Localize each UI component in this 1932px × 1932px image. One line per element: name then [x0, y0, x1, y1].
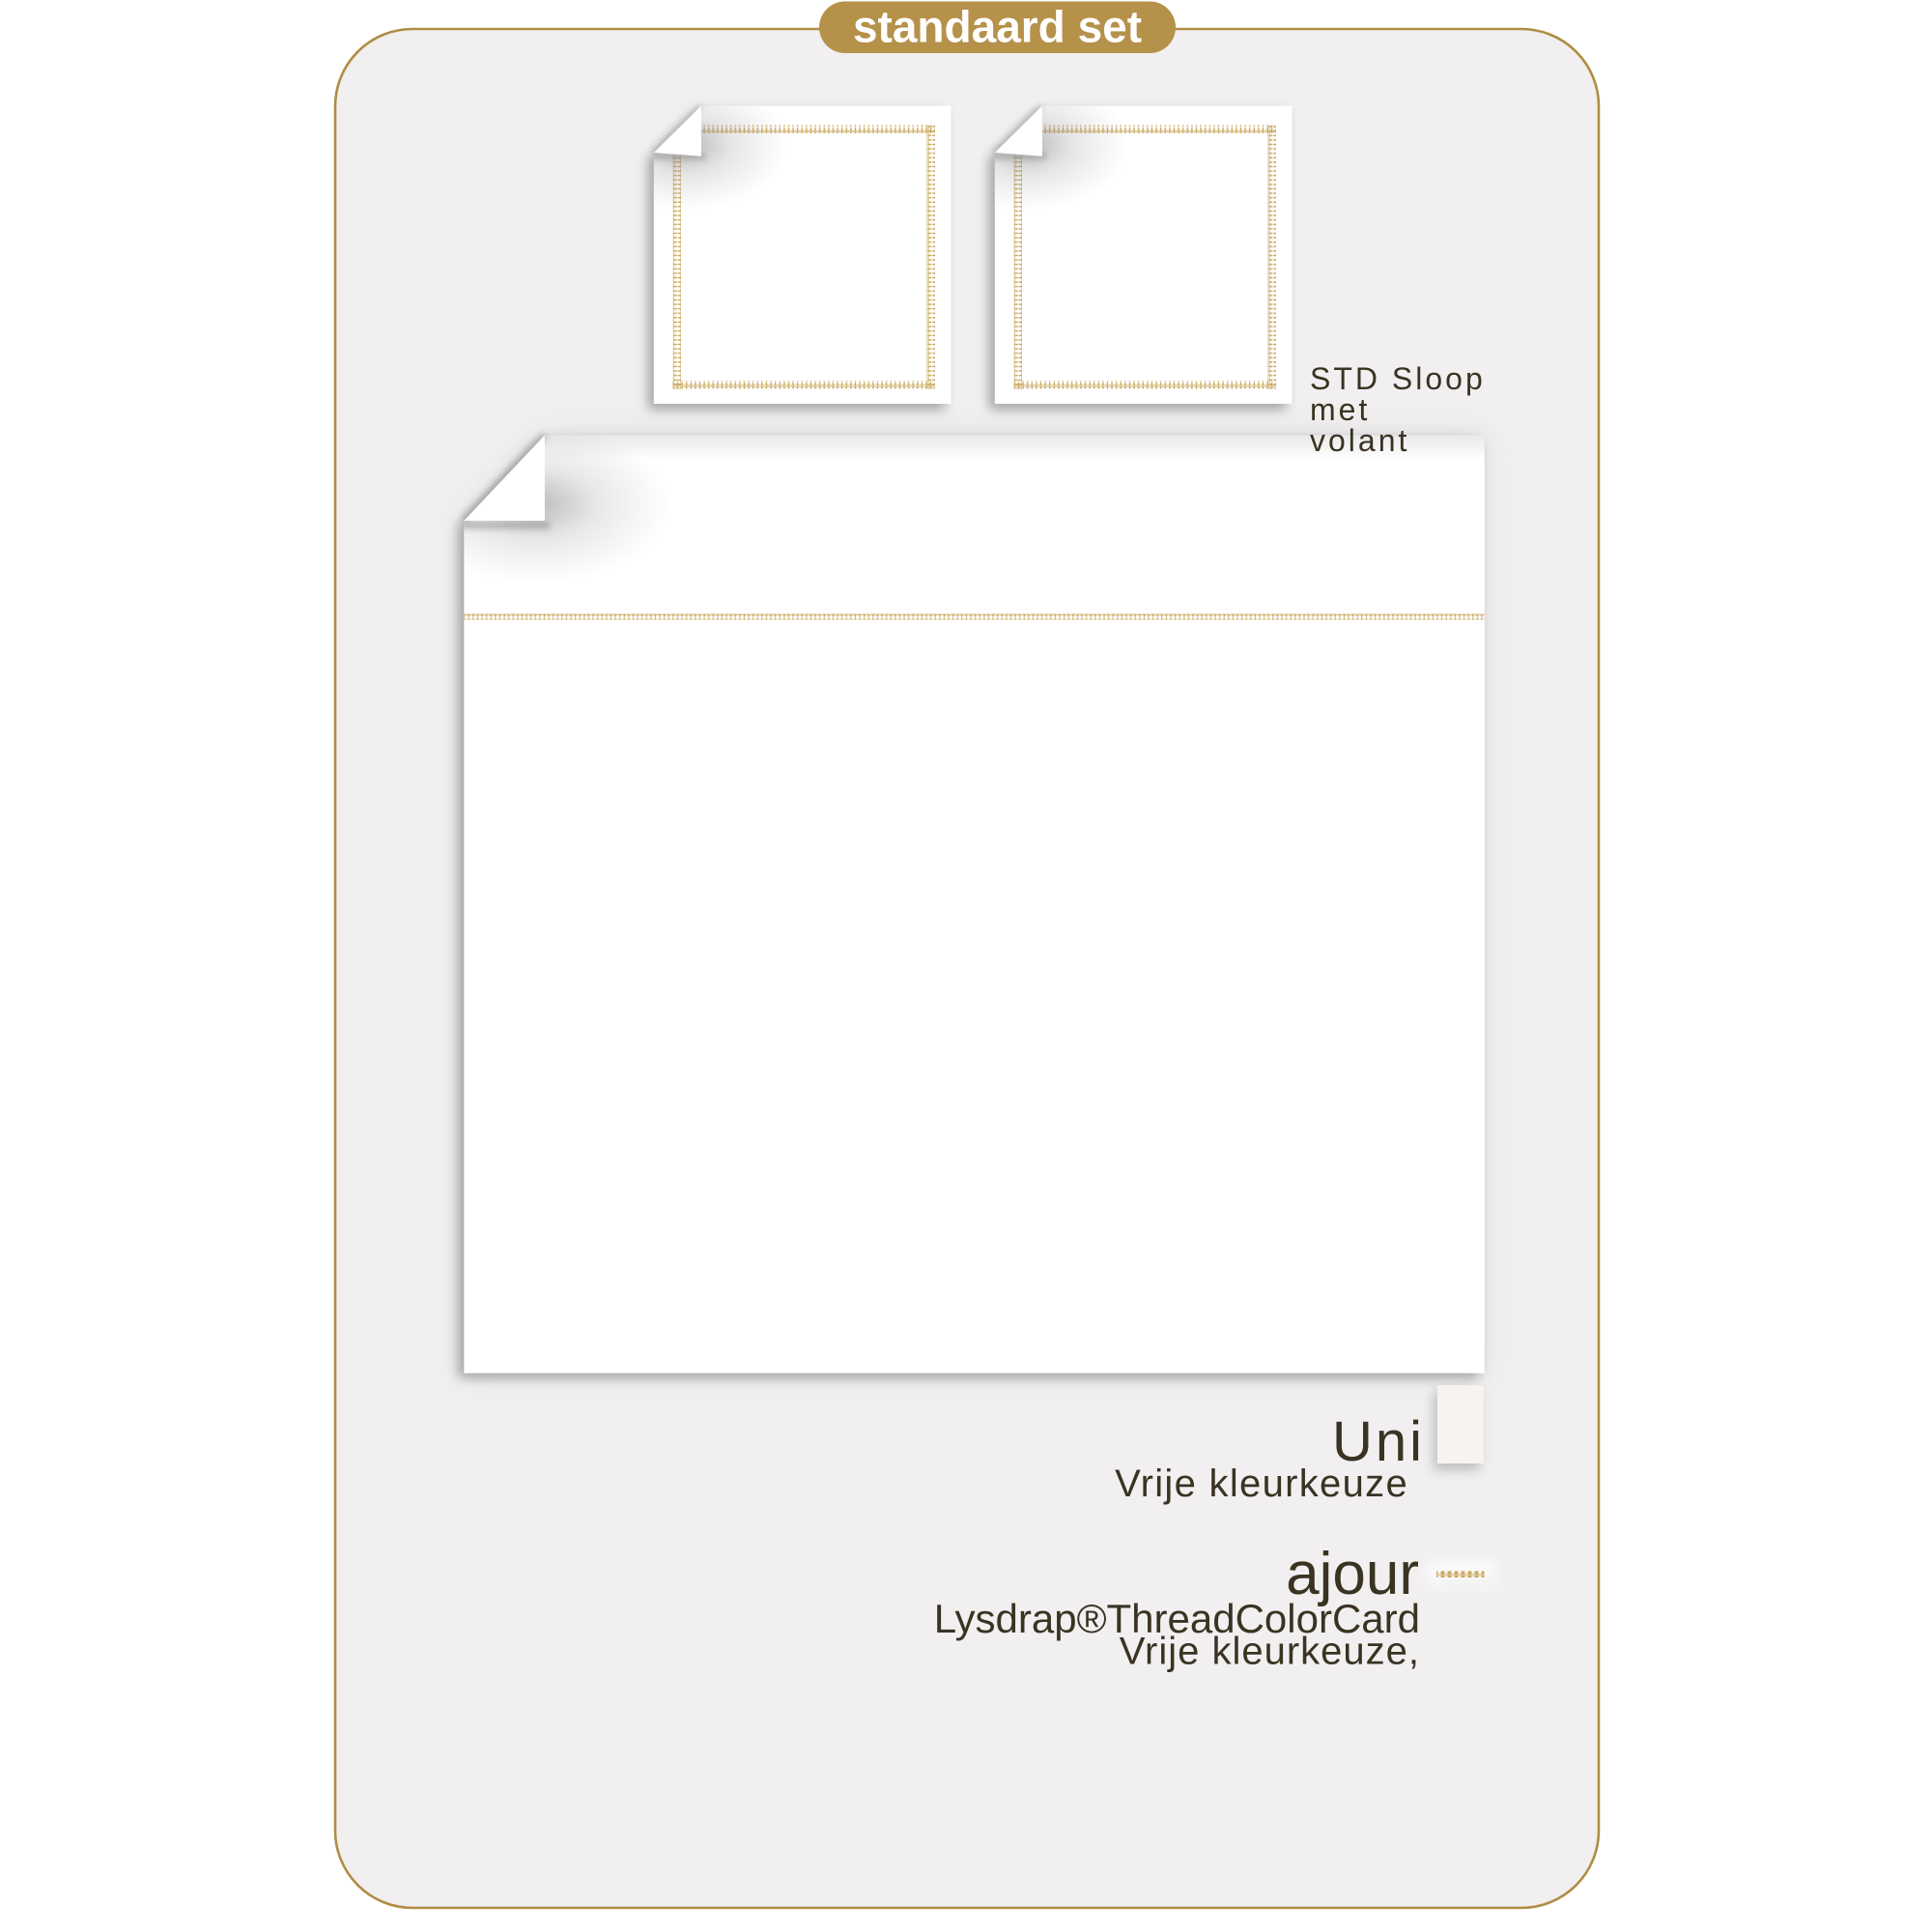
svg-text:volant: volant: [1310, 423, 1409, 458]
svg-text:Vrije kleurkeuze: Vrije kleurkeuze: [1115, 1463, 1408, 1505]
svg-text:standaard set: standaard set: [853, 2, 1142, 52]
svg-text:Vrije kleurkeuze,: Vrije kleurkeuze,: [1120, 1631, 1420, 1673]
svg-text:STD Sloop: STD Sloop: [1310, 361, 1486, 396]
svg-text:met: met: [1310, 392, 1370, 427]
